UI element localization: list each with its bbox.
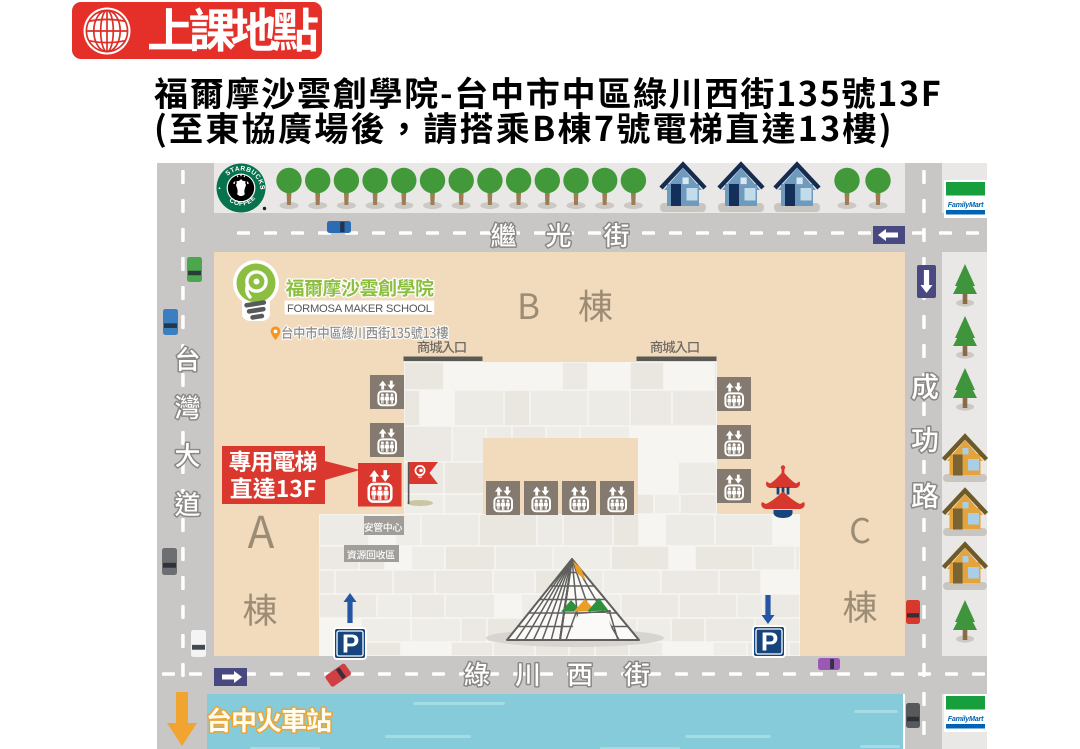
svg-text:FamilyMart: FamilyMart: [948, 714, 984, 723]
svg-text:P: P: [761, 627, 778, 657]
svg-text:FORMOSA MAKER SCHOOL: FORMOSA MAKER SCHOOL: [287, 303, 432, 315]
svg-text:P: P: [342, 629, 359, 659]
svg-text:FamilyMart: FamilyMart: [948, 200, 984, 209]
